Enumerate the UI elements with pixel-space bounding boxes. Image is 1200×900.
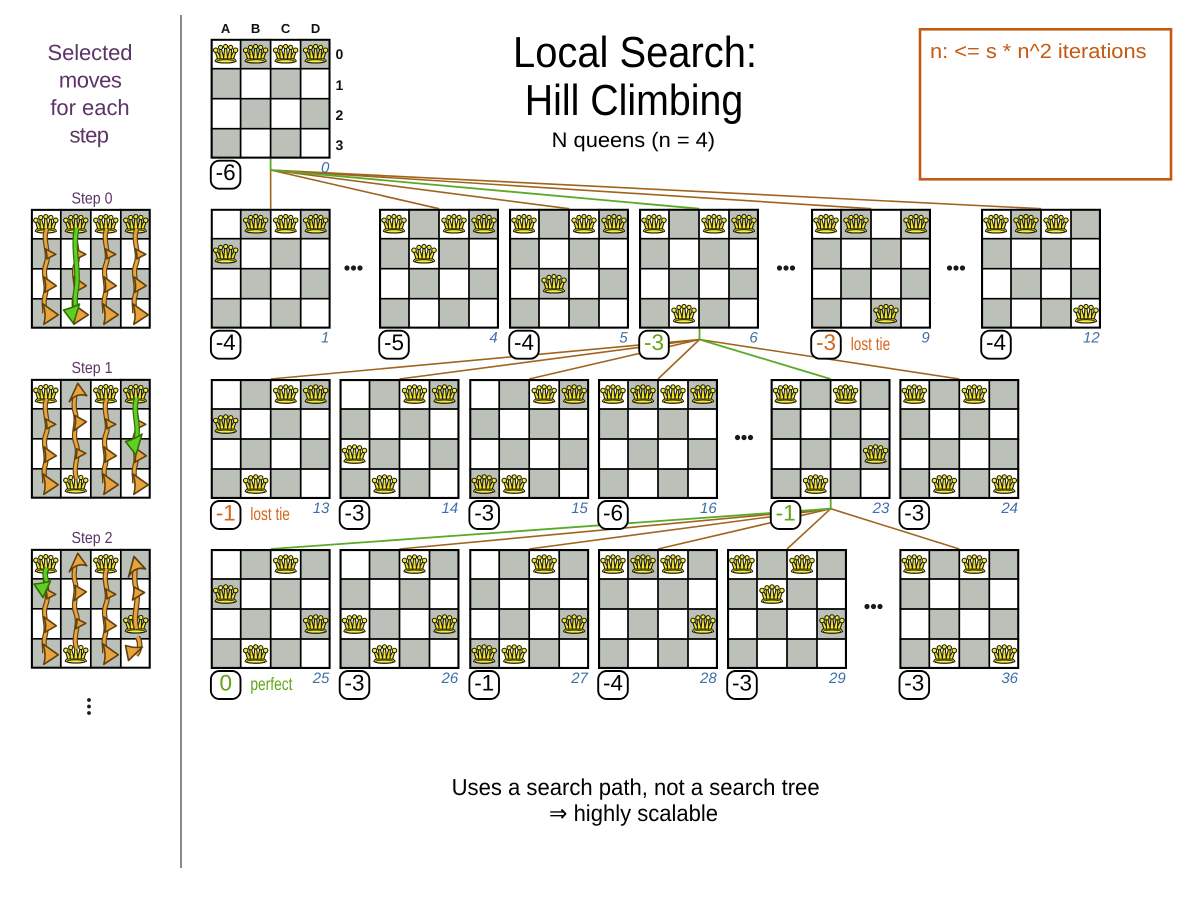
svg-text:-3: -3: [644, 330, 664, 355]
svg-text:Step 2: Step 2: [72, 530, 113, 547]
svg-text:36: 36: [1001, 670, 1018, 687]
svg-text:12: 12: [1083, 330, 1100, 347]
svg-text:Step 1: Step 1: [72, 360, 113, 377]
svg-text:-3: -3: [904, 671, 924, 696]
svg-text:Local Search:: Local Search:: [513, 29, 757, 77]
svg-text:26: 26: [441, 670, 459, 687]
svg-text:lost tie: lost tie: [250, 504, 290, 524]
svg-text:-6: -6: [216, 160, 236, 185]
svg-text:C: C: [281, 21, 291, 36]
svg-text:Hill Climbing: Hill Climbing: [525, 77, 744, 125]
svg-text:-6: -6: [603, 501, 623, 526]
svg-text:9: 9: [921, 330, 930, 347]
svg-text:-1: -1: [776, 501, 796, 526]
svg-text:4: 4: [489, 330, 497, 347]
svg-text:Step 0: Step 0: [72, 191, 113, 208]
svg-text:D: D: [311, 21, 320, 36]
svg-text:for each: for each: [50, 95, 129, 120]
svg-text:5: 5: [619, 330, 628, 347]
svg-text:23: 23: [872, 500, 890, 517]
svg-text:A: A: [221, 21, 231, 36]
svg-text:3: 3: [336, 137, 344, 153]
svg-text:step: step: [69, 123, 109, 148]
svg-text:-1: -1: [474, 671, 494, 696]
svg-text:2: 2: [336, 107, 344, 123]
svg-text:0: 0: [321, 160, 330, 177]
svg-text:-1: -1: [216, 501, 236, 526]
svg-text:14: 14: [442, 500, 459, 517]
svg-text:25: 25: [312, 670, 330, 687]
svg-text:-3: -3: [816, 330, 836, 355]
svg-text:13: 13: [313, 500, 330, 517]
svg-text:Selected: Selected: [48, 40, 133, 65]
svg-text:29: 29: [828, 670, 846, 687]
svg-text:N queens (n = 4): N queens (n = 4): [552, 129, 715, 152]
svg-text:-4: -4: [514, 330, 534, 355]
svg-text:-4: -4: [986, 330, 1006, 355]
svg-text:⇒ highly scalable: ⇒ highly scalable: [549, 800, 718, 826]
svg-text:B: B: [251, 21, 260, 36]
svg-text:16: 16: [700, 500, 717, 517]
svg-text:6: 6: [749, 330, 758, 347]
svg-text:15: 15: [571, 500, 588, 517]
svg-text:lost tie: lost tie: [851, 334, 891, 354]
svg-text:-3: -3: [904, 501, 924, 526]
svg-text:Uses a search path, not a sear: Uses a search path, not a search tree: [452, 774, 820, 800]
svg-text:perfect: perfect: [250, 674, 292, 694]
svg-text:-3: -3: [474, 501, 494, 526]
svg-text:1: 1: [336, 77, 344, 93]
svg-text:0: 0: [336, 46, 344, 62]
svg-text:-3: -3: [344, 671, 364, 696]
svg-text:-4: -4: [603, 671, 623, 696]
svg-text:n: <= s * n^2 iterations: n: <= s * n^2 iterations: [930, 40, 1147, 63]
svg-text:-3: -3: [732, 671, 752, 696]
svg-text:-5: -5: [384, 330, 404, 355]
svg-text:moves: moves: [59, 68, 122, 93]
svg-text:0: 0: [219, 671, 232, 696]
svg-text:28: 28: [699, 670, 717, 687]
svg-text:-4: -4: [216, 330, 236, 355]
svg-text:-3: -3: [344, 501, 364, 526]
svg-text:24: 24: [1000, 500, 1018, 517]
svg-text:27: 27: [570, 670, 588, 687]
svg-text:1: 1: [321, 330, 329, 347]
